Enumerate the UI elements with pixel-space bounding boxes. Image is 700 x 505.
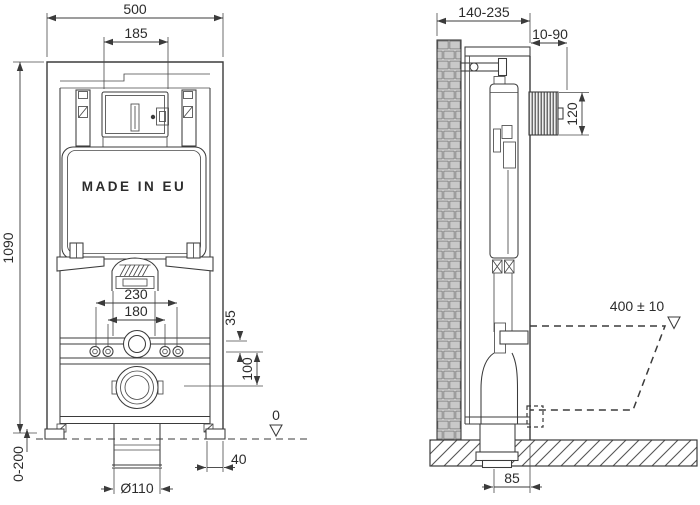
dim-fixing-span-inner: 180 xyxy=(124,303,148,319)
technical-drawing: MADE IN EU xyxy=(0,0,700,505)
flush-plate-side xyxy=(529,92,563,135)
dim-foot-adjust-range: 0-200 xyxy=(10,446,26,482)
water-inlet xyxy=(124,331,151,358)
dim-floor-datum: 0 xyxy=(272,407,280,423)
dim-bowl-rim-height: 400 ± 10 xyxy=(610,298,665,314)
plate-dot xyxy=(151,115,155,119)
flush-plate-opening xyxy=(102,92,169,137)
dim-frame-depth-range: 140-235 xyxy=(458,4,510,20)
dim-offset-bolts-to-drain: 100 xyxy=(239,357,255,381)
dim-total-width: 500 xyxy=(123,1,147,17)
floor-slab xyxy=(430,440,697,466)
made-in-eu-label: MADE IN EU xyxy=(82,179,187,194)
dim-drain-wall-offset: 85 xyxy=(504,470,520,486)
brick-wall xyxy=(437,40,461,440)
frame-foot-side xyxy=(476,424,518,468)
dim-plate-opening-width: 185 xyxy=(124,25,148,41)
dim-offset-rail-to-bolts: 35 xyxy=(222,310,238,326)
dim-frame-height: 1090 xyxy=(0,232,16,263)
drawing-canvas: MADE IN EU xyxy=(0,0,700,505)
dim-foot-width: 40 xyxy=(231,451,247,467)
dim-fixing-span-outer: 230 xyxy=(124,286,148,302)
dim-flush-plate-height: 120 xyxy=(564,102,580,126)
dim-drain-diameter: Ø110 xyxy=(120,480,153,496)
cistern-side xyxy=(490,77,518,259)
dim-wall-finish-range: 10-90 xyxy=(532,26,568,42)
plate-knob xyxy=(558,108,563,119)
cistern: MADE IN EU xyxy=(62,147,206,259)
